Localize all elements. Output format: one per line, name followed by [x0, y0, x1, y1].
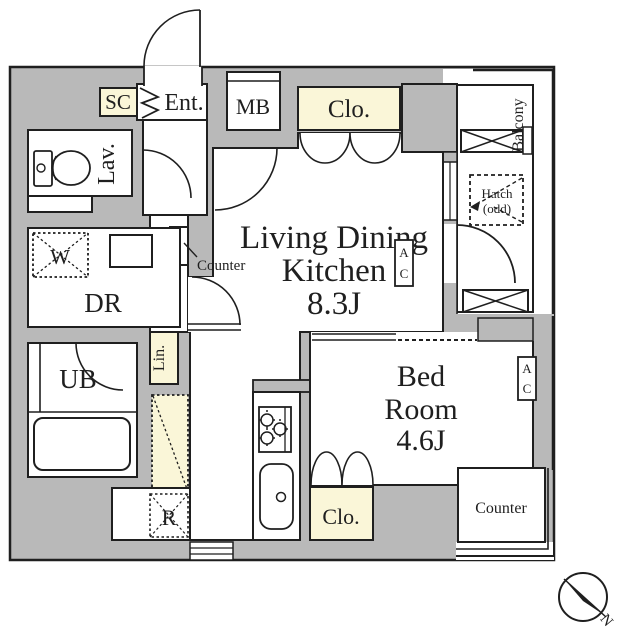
meter-box-label: MB: [236, 94, 270, 119]
unit-bath-label: UB: [59, 364, 97, 394]
entrance-door-arc: [144, 10, 200, 66]
ac-unit-ldk: A C: [395, 240, 413, 286]
linen-label: Lin.: [151, 345, 168, 371]
fridge-label: R: [162, 505, 177, 530]
counter-bed-label: Counter: [475, 500, 527, 517]
vanity: [110, 235, 152, 267]
entry-hall: [143, 120, 207, 215]
ldk-size-label: 8.3J: [307, 286, 361, 322]
ac-ldk-letter-a: A: [399, 245, 409, 260]
balcony-hatch: Hatch (odd): [470, 175, 523, 225]
entrance-doorway: [144, 66, 202, 86]
dr-label: DR: [84, 288, 122, 318]
bedroom-label-1: Bed: [397, 360, 445, 393]
stove-icon: [259, 407, 291, 452]
balcony-label: Balcony: [510, 98, 527, 151]
wall-chunk-bedroom-top: [478, 318, 533, 341]
closet-bedroom-label: Clo.: [322, 504, 359, 529]
ldk-label-2: Kitchen: [282, 253, 386, 289]
closet-top-label: Clo.: [328, 96, 370, 123]
ac-ldk-letter-c: C: [400, 266, 409, 281]
counter-bedroom: Counter: [456, 468, 554, 560]
lavatory-label: Lav.: [94, 143, 120, 185]
bedroom-size-label: 4.6J: [396, 424, 446, 457]
room-ent: Ent.: [137, 10, 207, 120]
hatch-label-2: (odd): [483, 201, 511, 216]
compass: N: [559, 573, 616, 630]
ac-bed-letter-a: A: [522, 361, 532, 376]
shoe-closet-label: SC: [105, 90, 131, 114]
room-bedroom: Bed Room 4.6J A C: [310, 318, 536, 487]
entrance-label: Ent.: [164, 90, 203, 116]
floor-plan: Hatch (odd) Balcony Living Dining Kitche…: [0, 0, 640, 640]
wall-chunk-top-right: [402, 84, 457, 152]
washer-label: W: [50, 245, 70, 269]
linen-shelf: Lin.: [150, 332, 178, 384]
washer-space: W: [33, 233, 88, 277]
balcony-xbox-2: [463, 290, 528, 312]
ac-unit-bedroom: A C: [518, 357, 536, 400]
storage-dotted: [152, 395, 188, 490]
toilet-icon: [34, 151, 90, 186]
meter-box: MB: [227, 72, 280, 130]
counter-hall-label: Counter: [197, 258, 245, 274]
kitchen-top-wall: [253, 380, 310, 392]
balcony-door-opening: [444, 224, 456, 283]
bathtub-icon: [34, 418, 130, 470]
room-dr: W DR: [28, 228, 180, 327]
lavatory-step: [28, 196, 92, 212]
kitchen-window: [190, 542, 233, 560]
sink-icon: [260, 464, 293, 529]
floor-plan-canvas: Hatch (odd) Balcony Living Dining Kitche…: [0, 0, 640, 640]
fridge-space: R: [112, 488, 190, 540]
room-unit-bath: UB: [28, 343, 137, 477]
ac-bed-letter-c: C: [523, 381, 532, 396]
hatch-label-1: Hatch: [481, 186, 513, 201]
bedroom-label-2: Room: [384, 393, 457, 426]
